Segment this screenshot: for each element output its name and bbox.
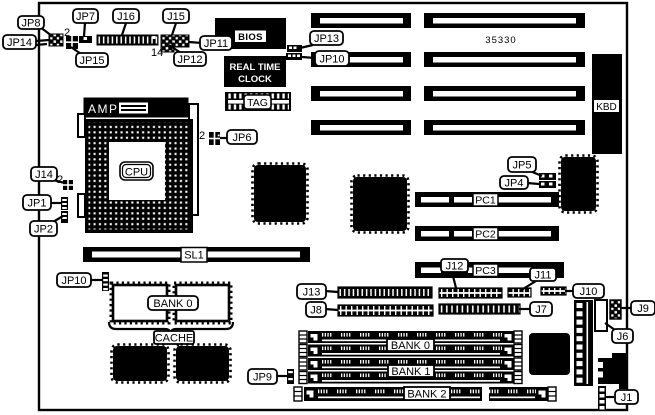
- svg-text:REAL TIME: REAL TIME: [229, 62, 280, 73]
- svg-text:J11: J11: [535, 270, 552, 282]
- svg-text:JP14: JP14: [7, 37, 32, 49]
- svg-text:JP9: JP9: [253, 372, 272, 384]
- svg-text:BANK 2: BANK 2: [407, 389, 446, 401]
- svg-text:JP7: JP7: [76, 11, 95, 23]
- svg-text:JP5: JP5: [513, 160, 532, 172]
- svg-text:JP15: JP15: [79, 55, 104, 67]
- svg-text:AMP: AMP: [88, 102, 119, 116]
- svg-text:JP10: JP10: [319, 54, 344, 66]
- svg-text:BIOS: BIOS: [238, 32, 263, 43]
- svg-text:JP11: JP11: [204, 38, 228, 50]
- svg-text:TAG: TAG: [247, 97, 268, 109]
- svg-text:JP13: JP13: [314, 33, 339, 45]
- svg-text:J1: J1: [621, 392, 633, 404]
- svg-text:CPU: CPU: [125, 167, 148, 179]
- svg-text:35330: 35330: [485, 35, 516, 46]
- svg-text:J13: J13: [303, 287, 321, 299]
- svg-text:JP8: JP8: [22, 18, 41, 30]
- svg-text:JP6: JP6: [233, 132, 252, 144]
- svg-text:JP10: JP10: [61, 275, 86, 287]
- svg-text:2: 2: [57, 174, 63, 186]
- svg-text:BANK 0: BANK 0: [153, 298, 192, 310]
- svg-text:J14: J14: [35, 169, 53, 181]
- svg-text:JP1: JP1: [28, 198, 47, 210]
- svg-text:2: 2: [64, 27, 70, 39]
- svg-text:CLOCK: CLOCK: [238, 74, 272, 85]
- svg-text:CACHE: CACHE: [155, 333, 194, 345]
- svg-text:BANK 1: BANK 1: [391, 366, 430, 378]
- svg-text:J6: J6: [617, 331, 629, 343]
- svg-text:J12: J12: [446, 261, 464, 273]
- svg-text:JP12: JP12: [177, 54, 202, 66]
- svg-text:SL1: SL1: [184, 250, 204, 262]
- svg-text:PC1: PC1: [475, 195, 496, 207]
- svg-text:KBD: KBD: [596, 102, 617, 113]
- svg-text:2: 2: [199, 130, 205, 142]
- svg-text:JP4: JP4: [505, 178, 524, 190]
- svg-text:BANK 0: BANK 0: [391, 340, 430, 352]
- svg-text:J15: J15: [167, 11, 185, 23]
- svg-text:J7: J7: [535, 304, 547, 316]
- svg-text:JP2: JP2: [34, 224, 53, 236]
- svg-text:PC2: PC2: [475, 229, 496, 241]
- svg-text:J8: J8: [310, 305, 322, 317]
- svg-text:J16: J16: [117, 11, 135, 23]
- svg-text:PC3: PC3: [475, 265, 496, 277]
- svg-text:J9: J9: [637, 303, 649, 315]
- svg-text:J10: J10: [580, 286, 598, 298]
